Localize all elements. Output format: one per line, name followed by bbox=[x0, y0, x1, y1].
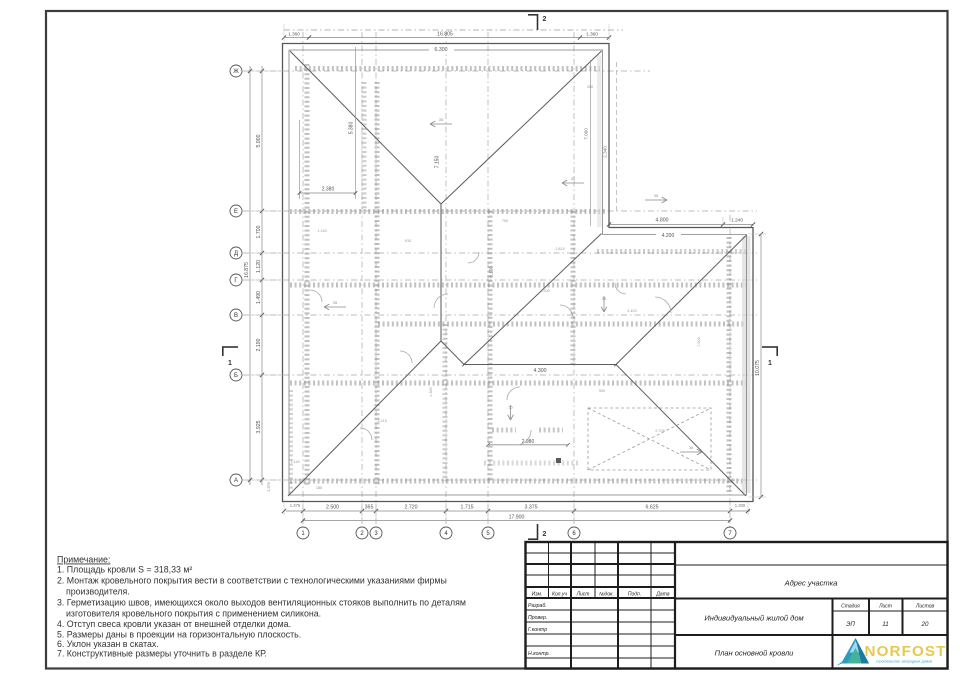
svg-text:2.380: 2.380 bbox=[322, 187, 335, 193]
svg-text:1.360: 1.360 bbox=[586, 32, 598, 37]
svg-text:Разраб.: Разраб. bbox=[528, 603, 547, 609]
svg-text:7.150: 7.150 bbox=[435, 156, 441, 169]
svg-text:2.705: 2.705 bbox=[655, 429, 665, 433]
svg-text:35: 35 bbox=[571, 176, 576, 181]
svg-text:Индивидуальный жилой дом: Индивидуальный жилой дом bbox=[704, 614, 803, 623]
svg-text:Н.контр.: Н.контр. bbox=[528, 651, 550, 657]
svg-text:10.075: 10.075 bbox=[755, 360, 761, 376]
svg-text:3.375: 3.375 bbox=[525, 505, 538, 511]
svg-text:6.300: 6.300 bbox=[435, 47, 448, 53]
svg-text:2.720: 2.720 bbox=[405, 505, 418, 511]
svg-text:4. Отступ свеса кровли указан: 4. Отступ свеса кровли указан от внешней… bbox=[57, 619, 291, 629]
svg-text:Подп.: Подп. bbox=[628, 592, 641, 598]
svg-text:11: 11 bbox=[882, 621, 888, 628]
svg-text:900: 900 bbox=[599, 389, 605, 393]
svg-text:1.700: 1.700 bbox=[256, 225, 262, 238]
svg-text:1.815: 1.815 bbox=[555, 247, 565, 251]
svg-text:1.490: 1.490 bbox=[256, 291, 262, 304]
svg-text:Г.контр: Г.контр bbox=[528, 627, 547, 633]
svg-text:изготовителя кровельного покры: изготовителя кровельного покрытия с прим… bbox=[66, 609, 321, 619]
svg-text:Д: Д bbox=[234, 251, 238, 257]
svg-text:ЭП: ЭП bbox=[846, 621, 855, 628]
svg-text:2.400: 2.400 bbox=[627, 309, 637, 313]
svg-text:строительство загородных домов: строительство загородных домов bbox=[876, 660, 932, 664]
svg-text:1: 1 bbox=[228, 360, 232, 367]
svg-text:35: 35 bbox=[333, 300, 338, 305]
svg-text:150: 150 bbox=[587, 85, 593, 89]
svg-text:35: 35 bbox=[654, 193, 659, 198]
svg-text:В: В bbox=[234, 313, 238, 319]
svg-text:4.800: 4.800 bbox=[656, 218, 669, 224]
svg-text:Кол.уч: Кол.уч bbox=[552, 592, 567, 598]
svg-text:150: 150 bbox=[316, 486, 322, 490]
svg-text:производителя.: производителя. bbox=[66, 587, 130, 597]
svg-text:4.200: 4.200 bbox=[662, 233, 675, 239]
svg-text:Лист: Лист bbox=[576, 592, 590, 598]
svg-text:16.875: 16.875 bbox=[244, 262, 250, 278]
svg-text:6.625: 6.625 bbox=[646, 505, 659, 511]
svg-text:1.300: 1.300 bbox=[735, 503, 746, 508]
svg-text:7.060: 7.060 bbox=[584, 128, 589, 140]
svg-text:3.925: 3.925 bbox=[256, 420, 262, 433]
svg-text:2. Монтаж кровельного покрытия: 2. Монтаж кровельного покрытия вести в с… bbox=[57, 576, 447, 586]
svg-text:1.715: 1.715 bbox=[461, 505, 474, 511]
svg-text:1.120: 1.120 bbox=[256, 260, 262, 273]
svg-text:1.360: 1.360 bbox=[429, 387, 433, 397]
svg-text:План основной кровли: План основной кровли bbox=[715, 649, 795, 658]
svg-text:Листов: Листов bbox=[915, 604, 935, 610]
svg-text:2.500: 2.500 bbox=[326, 505, 339, 511]
svg-text:35: 35 bbox=[439, 117, 444, 122]
svg-text:16.805: 16.805 bbox=[437, 32, 453, 38]
svg-text:2.190: 2.190 bbox=[256, 338, 262, 351]
svg-text:№док.: №док. bbox=[599, 592, 614, 598]
svg-text:1.500: 1.500 bbox=[697, 337, 701, 347]
svg-text:1.375: 1.375 bbox=[266, 481, 271, 492]
svg-text:А: А bbox=[234, 478, 238, 484]
svg-text:20: 20 bbox=[921, 621, 929, 628]
svg-text:5. Размеры даны в проекции на: 5. Размеры даны в проекции на горизонтал… bbox=[57, 630, 301, 640]
svg-text:1.200: 1.200 bbox=[540, 289, 550, 293]
svg-text:6.150: 6.150 bbox=[489, 266, 494, 278]
svg-text:35: 35 bbox=[508, 405, 513, 410]
svg-text:3. Герметизацию швов, имеющихс: 3. Герметизацию швов, имеющихся около вы… bbox=[57, 598, 466, 608]
svg-text:2.340: 2.340 bbox=[603, 146, 608, 158]
svg-text:2.215: 2.215 bbox=[377, 419, 387, 423]
svg-text:2.980: 2.980 bbox=[522, 439, 535, 445]
svg-text:7. Конструктивные размеры уточ: 7. Конструктивные размеры уточнить в раз… bbox=[57, 649, 267, 659]
svg-text:Изм.: Изм. bbox=[532, 592, 543, 598]
svg-text:1.140: 1.140 bbox=[290, 460, 300, 464]
svg-text:17.900: 17.900 bbox=[509, 515, 525, 521]
svg-text:2: 2 bbox=[543, 16, 547, 23]
svg-text:Лист: Лист bbox=[878, 604, 892, 610]
svg-text:1.140: 1.140 bbox=[317, 229, 327, 233]
svg-text:1.360: 1.360 bbox=[288, 32, 300, 37]
svg-text:910: 910 bbox=[405, 239, 411, 243]
svg-text:Дата: Дата bbox=[655, 592, 669, 598]
svg-text:1.375: 1.375 bbox=[290, 503, 301, 508]
svg-text:Е: Е bbox=[234, 209, 238, 215]
svg-text:5.380: 5.380 bbox=[349, 122, 355, 135]
svg-text:365: 365 bbox=[365, 505, 374, 511]
svg-text:Стадия: Стадия bbox=[841, 604, 860, 610]
svg-text:Адрес участка: Адрес участка bbox=[784, 579, 838, 588]
svg-text:2: 2 bbox=[543, 531, 547, 538]
svg-text:6. Уклон указан в скатах.: 6. Уклон указан в скатах. bbox=[57, 639, 159, 649]
svg-text:1. Площадь кровли S = 318,33 м: 1. Площадь кровли S = 318,33 м² bbox=[57, 565, 192, 575]
svg-text:4.300: 4.300 bbox=[534, 368, 547, 374]
svg-text:Ж: Ж bbox=[233, 69, 239, 75]
svg-text:Примечание:: Примечание: bbox=[57, 555, 110, 565]
svg-text:Б: Б bbox=[234, 373, 238, 379]
svg-text:760: 760 bbox=[502, 219, 508, 223]
svg-text:35: 35 bbox=[602, 296, 607, 301]
svg-text:Провер.: Провер. bbox=[528, 615, 547, 621]
svg-text:5.900: 5.900 bbox=[256, 134, 262, 147]
svg-text:1: 1 bbox=[768, 360, 772, 367]
svg-text:NORFOST: NORFOST bbox=[865, 643, 947, 660]
svg-text:35: 35 bbox=[689, 445, 694, 450]
svg-text:1.240: 1.240 bbox=[731, 218, 743, 224]
